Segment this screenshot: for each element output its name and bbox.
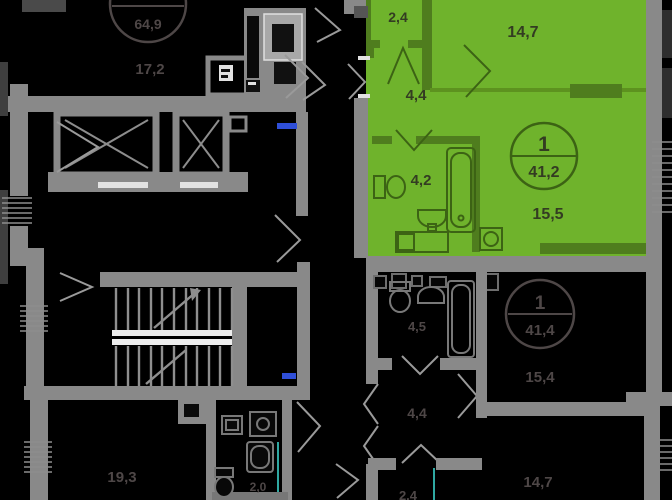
toilet-tank-icon (215, 468, 233, 477)
elevator-door-mark (98, 182, 148, 188)
stove-icon (250, 412, 276, 436)
badge-room-count: 1 (535, 293, 546, 314)
apartment-badge-highlighted[interactable]: 1 41,2 (511, 123, 577, 189)
room-label-bath: 4,2 (411, 172, 432, 189)
room-label-living: 15,5 (532, 206, 563, 223)
room-label-living: 15,4 (525, 369, 555, 386)
stair-landing-bar (112, 339, 232, 345)
room-label-balcony: 2,4 (399, 488, 418, 500)
vent-icon (219, 65, 233, 81)
apartment-highlighted[interactable]: 2,4 14,7 4,4 4,2 15,5 1 41,2 (358, 0, 648, 258)
room-label: 17,2 (135, 61, 164, 78)
room-label-hall: 4,4 (406, 87, 428, 104)
badge-area: 41,2 (528, 164, 559, 181)
room-label-bedroom: 14,7 (507, 24, 538, 41)
room-label-bedroom: 14,7 (523, 474, 552, 491)
room-label-hall: 4,4 (407, 405, 427, 421)
floor-plan-canvas: 2,4 14,7 4,4 4,2 15,5 1 41,2 (0, 0, 672, 500)
badge-area: 64,9 (134, 16, 161, 32)
room-label-bath: 4,5 (408, 319, 426, 334)
stair-landing-bar (112, 330, 232, 336)
room-label: 19,3 (107, 469, 136, 486)
elevator-door-mark (180, 182, 218, 188)
toilet-bowl-icon (215, 477, 233, 497)
badge-room-count: 1 (538, 133, 550, 156)
door-jamb-mark (358, 56, 370, 60)
badge-area: 41,4 (525, 322, 555, 339)
door-jamb-mark (358, 94, 370, 98)
floor-plan-svg: 2,4 14,7 4,4 4,2 15,5 1 41,2 (0, 0, 672, 500)
room-label-wc: 2,0 (250, 480, 267, 494)
threshold-blue (282, 373, 296, 379)
room-label-balcony: 2,4 (388, 9, 408, 25)
threshold-blue (277, 123, 297, 129)
